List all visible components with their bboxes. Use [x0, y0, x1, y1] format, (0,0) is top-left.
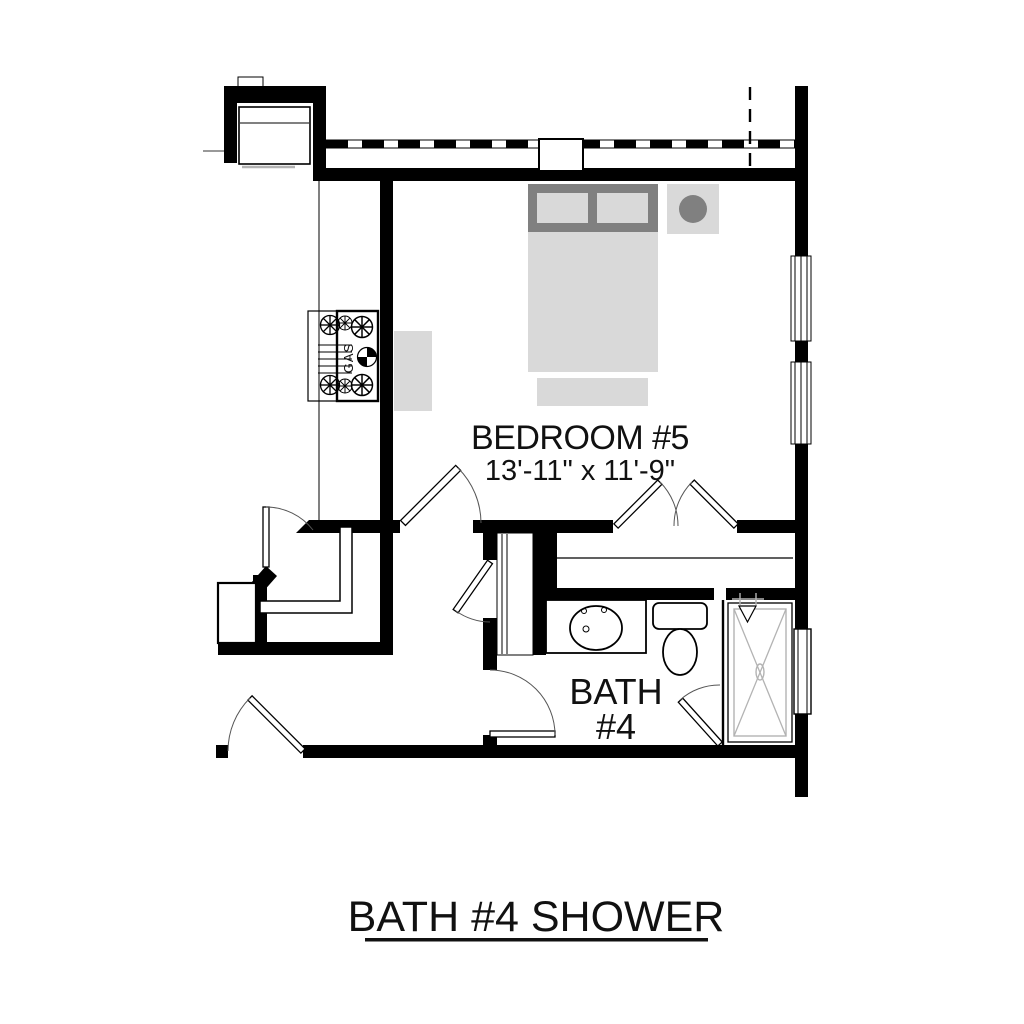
floor-plan-svg: GAS [0, 0, 1024, 1024]
chase-box [218, 583, 256, 643]
linen-chase [497, 533, 533, 655]
door-linen [453, 560, 492, 622]
door-hall-bottom [228, 696, 305, 753]
stair-hall-area [218, 527, 352, 643]
plan-title-underline [365, 938, 708, 942]
wall-right-3 [795, 444, 808, 630]
bed-pillow-left [537, 193, 588, 223]
wall-closet-left [533, 533, 557, 588]
wall-bath-left-1 [483, 533, 497, 560]
vanity-sink [546, 600, 646, 653]
window-right-1 [791, 256, 811, 341]
bedroom-furniture [394, 184, 719, 411]
range-label: GAS [341, 343, 356, 373]
beam-break-box [539, 139, 583, 171]
wall-bath-top-2 [726, 588, 808, 600]
bedroom-label: BEDROOM #5 [471, 419, 689, 457]
dresser [394, 331, 432, 411]
wall-bedroom-bottom-mid [473, 520, 613, 533]
shower [723, 593, 792, 745]
wall-topleft-vertical [313, 86, 326, 181]
wall-topleft-horizontal [224, 86, 326, 103]
sink-bowl [570, 606, 622, 650]
wall-right-1 [795, 86, 808, 256]
window-shower [794, 629, 811, 714]
wall-bottom [303, 745, 808, 758]
fireplace-box [239, 107, 310, 164]
door-shower [678, 685, 722, 746]
toilet [653, 603, 707, 675]
lamp-icon [679, 195, 707, 223]
door-stair-hall [263, 507, 313, 567]
plan-title-group: BATH #4 SHOWER [348, 893, 725, 942]
wall-kitchen-divider [380, 181, 393, 653]
bed-foot-blanket [537, 378, 648, 406]
wall-bedroom-bottom-right [737, 520, 808, 533]
bedroom-dimensions: 13'-11" x 11'-9" [485, 455, 675, 487]
door-closet-left [614, 480, 678, 528]
door-closet-right [674, 480, 738, 528]
wall-right-2 [795, 341, 808, 362]
labels: BEDROOM #5 13'-11" x 11'-9" BATH #4 [471, 419, 689, 747]
fireplace-vent [238, 77, 263, 87]
bed-body [528, 232, 658, 372]
floor-plan-canvas: GAS [0, 0, 1024, 1024]
bed-pillow-right [597, 193, 648, 223]
toilet-tank [653, 603, 707, 629]
window-right-2 [791, 362, 811, 444]
kitchen-area: GAS [308, 181, 378, 520]
wall-bath-left-2 [483, 618, 497, 670]
wall-bath-top-1 [546, 588, 714, 600]
centroid-symbol-icon [358, 348, 377, 367]
bath-label-line2: #4 [596, 706, 636, 747]
wall-closet-left-lower [533, 588, 546, 655]
plan-title: BATH #4 SHOWER [348, 893, 725, 941]
stair-railing [260, 527, 352, 613]
wall-bottom-left-stub [216, 745, 228, 758]
toilet-bowl [663, 629, 697, 675]
door-bath-entry [490, 670, 555, 737]
overhead-dashed-lines [326, 87, 795, 171]
door-bedroom-entry [401, 465, 481, 525]
bed [528, 184, 658, 406]
nightstand [667, 184, 719, 234]
bath-fixtures [546, 593, 792, 745]
